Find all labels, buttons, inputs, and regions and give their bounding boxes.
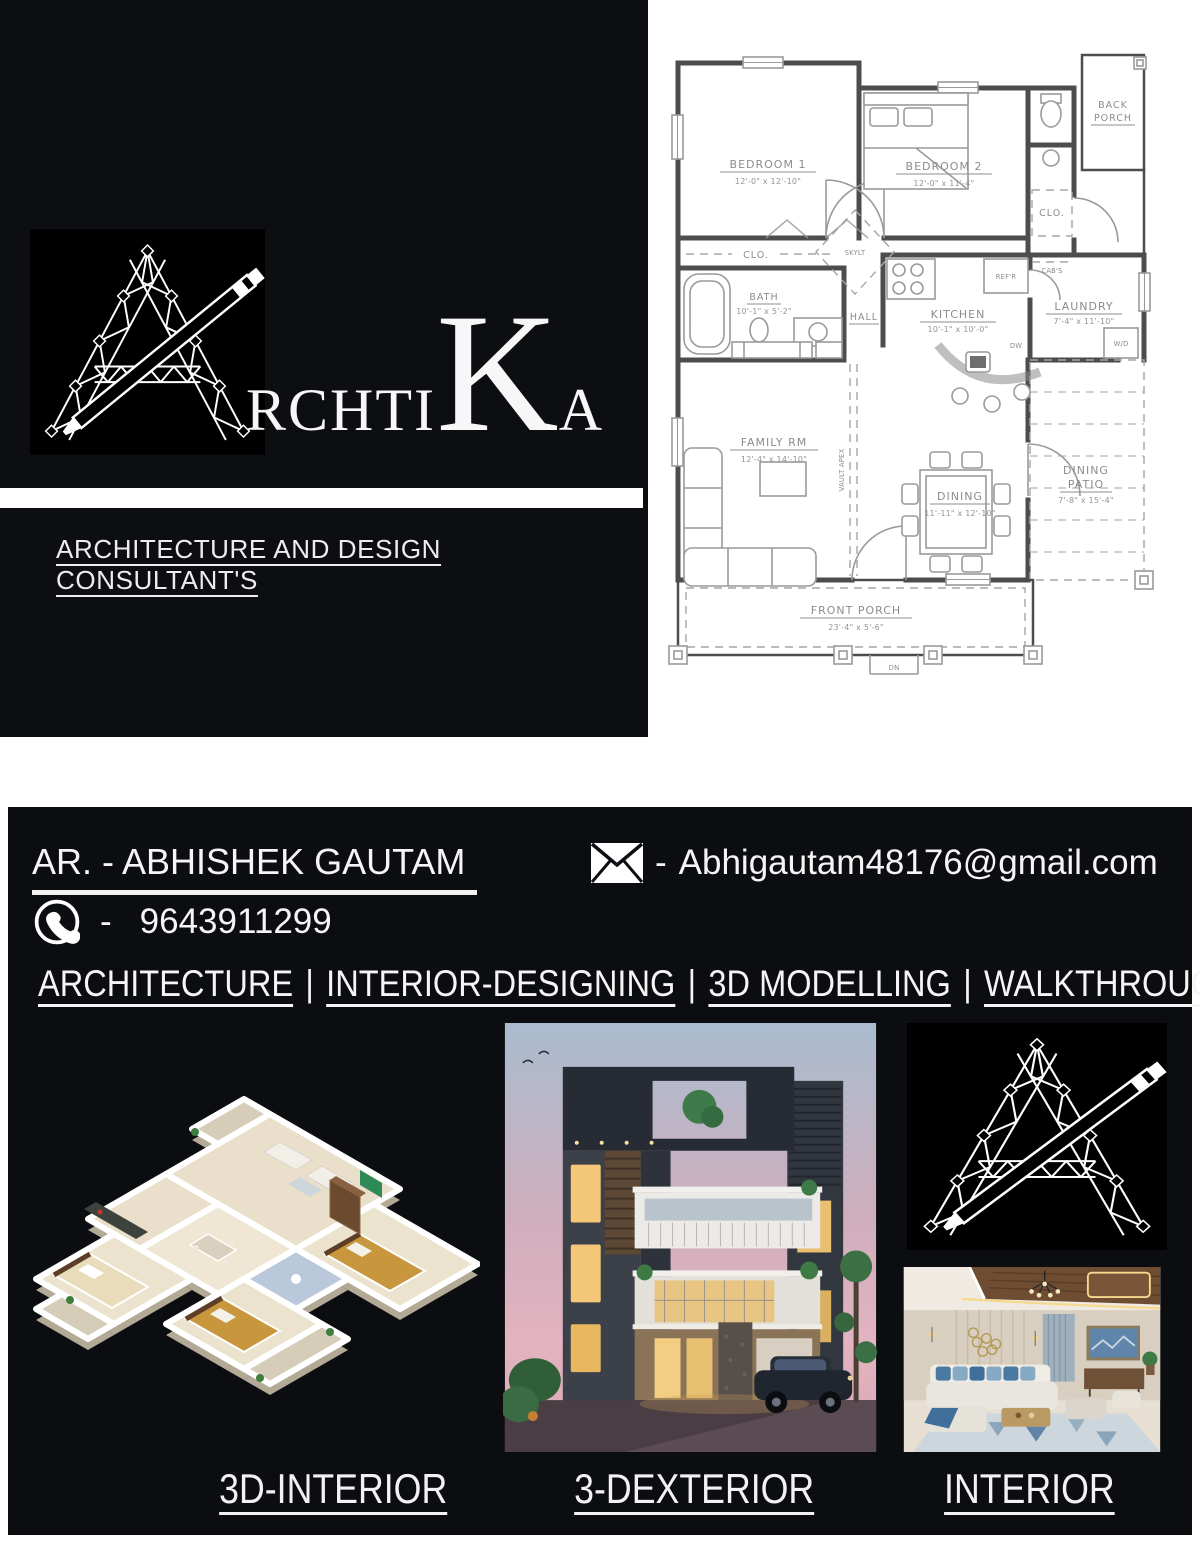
archtika-logo-icon bbox=[30, 226, 265, 458]
label-3-dexterior-text: 3-DEXTERIOR bbox=[574, 1465, 814, 1513]
room-label-bedroom1: BEDROOM 1 bbox=[730, 158, 807, 171]
wc-fixtures bbox=[1041, 94, 1061, 166]
label-cabinets: CAB'S bbox=[1041, 267, 1062, 275]
label-vault-apex: VAULT APEX bbox=[838, 449, 846, 492]
room-dims-patio: 7'-8" x 15'-4" bbox=[1058, 496, 1114, 505]
service-3d-modelling: 3D MODELLING bbox=[708, 963, 950, 1004]
label-skylight: SKYLT bbox=[845, 249, 866, 257]
label-washer-dryer: W/D bbox=[1114, 340, 1129, 348]
service-separator: | bbox=[305, 963, 313, 1004]
bed-furniture bbox=[864, 93, 968, 189]
email-dash: - bbox=[655, 843, 667, 883]
room-dims-family: 12'-4" x 14'-10" bbox=[741, 455, 807, 464]
room-label-hall: HALL bbox=[850, 312, 878, 323]
services-line: ARCHITECTURE|INTERIOR-DESIGNING|3D MODEL… bbox=[38, 963, 1200, 1005]
exterior-render-image bbox=[503, 1023, 878, 1452]
room-dims-front-porch: 23'-4" x 5'-6" bbox=[828, 623, 884, 632]
label-refrigerator: REF'R bbox=[996, 273, 1017, 281]
label-interior-text: INTERIOR bbox=[944, 1465, 1115, 1513]
architect-name: AR. - ABHISHEK GAUTAM bbox=[32, 841, 477, 895]
room-dims-kitchen: 10'-1" x 10'-0" bbox=[928, 325, 989, 334]
archtika-logo-icon-small bbox=[907, 1023, 1167, 1250]
room-label-laundry: LAUNDRY bbox=[1054, 300, 1113, 313]
room-label-closet1: CLO. bbox=[743, 250, 769, 261]
email-text: Abhigautam48176@gmail.com bbox=[679, 843, 1158, 883]
room-label-bedroom2: BEDROOM 2 bbox=[906, 160, 983, 173]
room-label-closet2: CLO. bbox=[1039, 208, 1065, 219]
room-label-kitchen: KITCHEN bbox=[931, 308, 986, 321]
room-label-family: FAMILY RM bbox=[741, 436, 808, 449]
floorplan-drawing: BEDROOM 1 12'-0" x 12'-10" BEDROOM 2 12'… bbox=[648, 0, 1200, 737]
room-label-dining: DINING bbox=[937, 490, 983, 503]
family-furniture bbox=[684, 342, 842, 586]
iso-floorplan-image bbox=[30, 1030, 480, 1470]
label-3d-interior-text: 3D-INTERIOR bbox=[219, 1465, 447, 1513]
architect-name-text: AR. - ABHISHEK GAUTAM bbox=[32, 841, 477, 895]
label-dishwasher: DW bbox=[1010, 342, 1022, 350]
room-dims-bedroom2: 12'-0" x 11'-4" bbox=[914, 179, 975, 188]
label-down: DN bbox=[889, 664, 900, 672]
wordmark-k: K bbox=[436, 279, 559, 467]
phone-dash: - bbox=[100, 902, 112, 942]
floorplan-panel: BEDROOM 1 12'-0" x 12'-10" BEDROOM 2 12'… bbox=[648, 0, 1200, 737]
label-interior: INTERIOR bbox=[829, 1465, 1200, 1513]
contact-panel: AR. - ABHISHEK GAUTAM - Abhigautam48176@… bbox=[8, 807, 1192, 1535]
divider-strip bbox=[0, 488, 643, 508]
brand-panel: RCHTIKA ARCHITECTURE AND DESIGN CONSULTA… bbox=[0, 0, 648, 737]
room-label-back-porch-1: BACK bbox=[1098, 100, 1128, 111]
interior-render-image bbox=[897, 1267, 1167, 1452]
room-label-back-porch-2: PORCH bbox=[1094, 113, 1132, 124]
room-dims-dining: 11'-11" x 12'-10" bbox=[924, 509, 995, 518]
wordmark-prefix: RCHTI bbox=[246, 377, 436, 443]
label-3d-interior: 3D-INTERIOR bbox=[133, 1465, 533, 1513]
brand-tagline: ARCHITECTURE AND DESIGN CONSULTANT'S bbox=[56, 534, 616, 596]
email-row: - Abhigautam48176@gmail.com bbox=[591, 843, 1158, 883]
room-dims-bedroom1: 12'-0" x 12'-10" bbox=[735, 177, 801, 186]
room-label-bath: BATH bbox=[749, 292, 778, 303]
phone-number: 9643911299 bbox=[140, 902, 332, 942]
room-dims-laundry: 7'-4" x 11'-10" bbox=[1054, 317, 1115, 326]
room-dims-bath: 10'-1" x 5'-2" bbox=[736, 307, 792, 316]
service-interior-designing: INTERIOR-DESIGNING bbox=[326, 963, 675, 1004]
service-walkthrough: WALKTHROUGH bbox=[984, 963, 1200, 1004]
wordmark-suffix: A bbox=[559, 377, 604, 443]
kitchen-fixtures bbox=[887, 259, 1040, 412]
phone-icon bbox=[34, 899, 80, 945]
service-separator: | bbox=[688, 963, 696, 1004]
room-label-patio-1: DINING bbox=[1063, 464, 1109, 477]
brand-wordmark: RCHTIKA bbox=[246, 288, 604, 458]
room-label-patio-2: PATIO bbox=[1068, 478, 1104, 491]
envelope-icon bbox=[591, 843, 643, 883]
room-label-front-porch: FRONT PORCH bbox=[811, 604, 901, 617]
flyer-page: RCHTIKA ARCHITECTURE AND DESIGN CONSULTA… bbox=[0, 0, 1200, 1545]
phone-row: - 9643911299 bbox=[34, 899, 332, 945]
service-separator: | bbox=[963, 963, 971, 1004]
service-architecture: ARCHITECTURE bbox=[38, 963, 293, 1004]
